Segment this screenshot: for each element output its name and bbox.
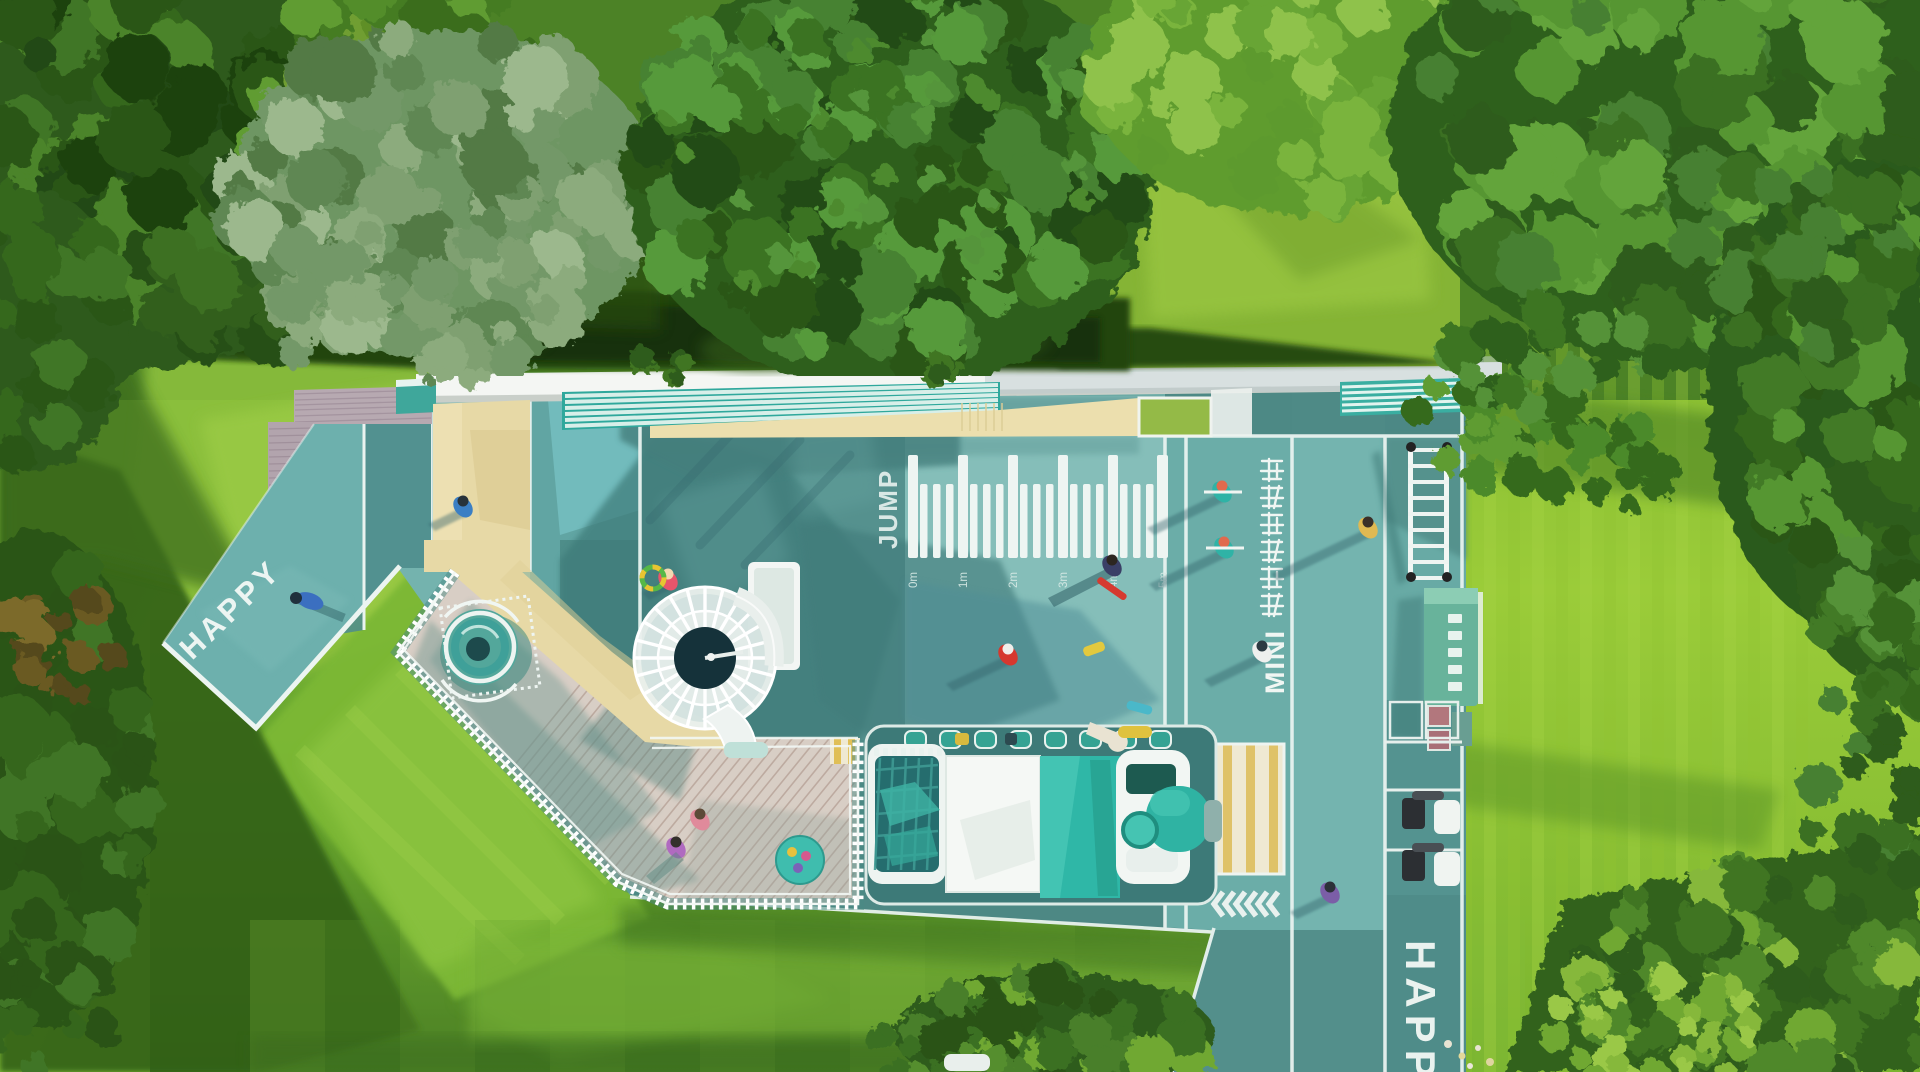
svg-text:2m: 2m bbox=[1008, 572, 1020, 588]
svg-text:0m: 0m bbox=[908, 572, 920, 588]
svg-text:HAPPY: HAPPY bbox=[1397, 940, 1444, 1072]
svg-text:3m: 3m bbox=[1058, 572, 1070, 588]
svg-text:1m: 1m bbox=[958, 572, 970, 588]
svg-text:JUMP: JUMP bbox=[873, 469, 903, 549]
